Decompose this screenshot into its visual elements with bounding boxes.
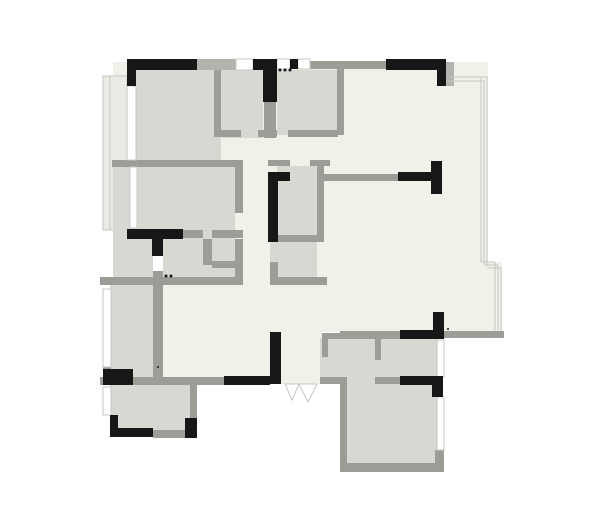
wall-black-segment — [127, 59, 197, 70]
wall-segment-light — [197, 59, 236, 70]
wall-black-segment — [110, 428, 153, 437]
wall-segment — [320, 377, 347, 384]
detail-dot — [284, 69, 287, 72]
entry-door-leaf — [285, 384, 299, 400]
room-left-narrow-fill — [110, 283, 153, 377]
wall-segment-light — [446, 62, 454, 86]
wall-segment — [221, 130, 241, 137]
wall-black-segment — [268, 172, 290, 181]
wall-segment — [203, 239, 212, 265]
detail-dot — [157, 366, 159, 368]
window — [127, 86, 136, 160]
wall-segment — [322, 338, 328, 357]
window — [236, 59, 253, 70]
room-topleft-bedroom-fill — [127, 70, 221, 162]
room-bottomright-lower-fill — [347, 384, 437, 463]
room-bottomleft-fill — [110, 384, 190, 430]
wall-black-segment — [268, 172, 278, 242]
window — [277, 59, 290, 69]
wall-segment — [308, 61, 386, 69]
wall-segment — [340, 384, 347, 466]
wall-segment — [212, 230, 243, 238]
wall-segment — [214, 62, 221, 137]
wall-black-segment — [433, 312, 444, 339]
wall-segment — [340, 463, 444, 472]
wall-black-segment — [432, 376, 443, 397]
wall-segment — [183, 230, 203, 238]
room-topmid-b-fill — [277, 70, 337, 135]
wall-segment — [435, 450, 444, 463]
wall-segment — [375, 377, 400, 384]
wall-black-segment — [400, 330, 438, 339]
room-topmid-a-fill — [221, 70, 263, 138]
window — [103, 289, 111, 367]
wall-segment — [268, 160, 290, 166]
wall-segment — [100, 277, 243, 285]
wall-black-segment — [270, 332, 281, 384]
wall-segment — [190, 385, 197, 418]
wall-segment — [235, 163, 243, 213]
wall-black-segment — [437, 59, 446, 86]
window — [437, 340, 444, 377]
wall-black-segment — [224, 376, 270, 385]
entry-door-leaf — [299, 384, 317, 402]
wall-segment — [193, 377, 224, 385]
detail-dot — [447, 328, 449, 330]
wall-segment — [112, 160, 243, 167]
window — [298, 59, 310, 69]
wall-black-segment — [185, 418, 197, 438]
wall-segment — [270, 262, 278, 277]
wall-segment — [288, 130, 338, 137]
wall-segment — [277, 235, 324, 242]
wall-black-segment — [127, 59, 136, 86]
detail-dot — [279, 69, 282, 72]
wall-black-segment — [431, 161, 442, 194]
wall-segment — [270, 277, 327, 285]
detail-dot — [170, 275, 173, 278]
floor-plan-page — [0, 0, 600, 522]
wall-black-segment — [263, 59, 277, 102]
wall-black-segment — [398, 172, 435, 181]
wall-segment — [153, 285, 163, 380]
wall-segment — [235, 239, 243, 277]
wall-black-segment — [290, 59, 298, 69]
wall-black-segment — [103, 369, 133, 385]
window — [437, 397, 444, 450]
wall-segment — [324, 174, 400, 181]
detail-dot — [289, 69, 292, 72]
door-gap — [153, 256, 163, 271]
detail-dot — [165, 275, 168, 278]
wall-segment — [264, 100, 276, 138]
floor-plan — [0, 0, 600, 522]
wall-segment — [438, 331, 504, 338]
wall-segment — [375, 338, 381, 360]
wall-segment — [317, 160, 324, 236]
floor-entry-hall — [160, 283, 322, 384]
window — [103, 387, 111, 415]
wall-segment — [337, 62, 344, 135]
window — [130, 167, 137, 228]
wall-black-segment — [152, 229, 163, 256]
